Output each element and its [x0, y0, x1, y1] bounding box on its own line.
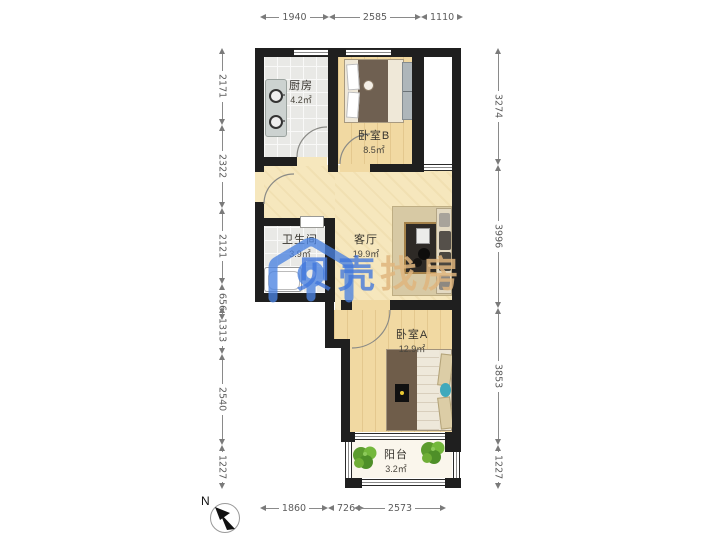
window-bedroom-a-balcony [355, 433, 445, 440]
compass-icon [207, 500, 243, 536]
window-bedroom-b [346, 49, 391, 56]
room-name: 卧室B [358, 130, 390, 142]
window-balcony-left [345, 442, 352, 478]
wall-bedroom-a-left [341, 339, 350, 439]
kitchen-door-arc [297, 127, 328, 158]
window-balcony-bottom [362, 479, 445, 486]
kitchen-label: 厨房 4.2㎡ [289, 76, 313, 106]
dim-bottom-2: 726 [328, 503, 354, 513]
post-balcony-bottom-right [445, 478, 461, 488]
dim-right-1: 3274 [492, 48, 504, 165]
watermark-brand-tan: 找房 [380, 254, 464, 295]
plant-icon [351, 443, 379, 471]
tv-box [395, 384, 409, 402]
dim-right-3: 3853 [492, 308, 504, 445]
entry-door-arc [264, 174, 295, 205]
bedroom-a-door-arc [352, 310, 391, 349]
dim-left-7: 1227 [216, 445, 228, 489]
dim-right-4: 1227 [492, 445, 504, 489]
sofa-pillow [439, 213, 450, 227]
dim-top-1: 1940 [260, 12, 329, 22]
dim-left-1: 2171 [216, 48, 228, 125]
dim-left-2: 2322 [216, 125, 228, 208]
dim-right-2: 3996 [492, 165, 504, 308]
plant-icon [419, 438, 447, 466]
post-balcony-bottom-left [345, 478, 362, 488]
window-kitchen [294, 49, 328, 56]
balcony-label: 阳台 3.2㎡ [384, 445, 408, 475]
wall-bedroom-b-bottom [370, 164, 424, 172]
burner-icon [269, 115, 283, 129]
bedroom-a-label: 卧室A 12.9㎡ [396, 325, 428, 355]
bedroom-b-label: 卧室B 8.5㎡ [358, 126, 390, 156]
window-balcony-right [453, 452, 460, 478]
room-area: 12.9㎡ [396, 344, 428, 354]
wall-left-upper [255, 48, 264, 172]
watermark-text: 贝壳找房 [296, 244, 464, 298]
wall-bath-top-left [263, 218, 300, 226]
dim-left-3: 2121 [216, 208, 228, 284]
bed-a [386, 349, 452, 431]
entry-opening [255, 172, 264, 202]
dim-bottom-3: 2573 [354, 503, 446, 513]
dim-left-4: 656 [216, 284, 228, 307]
window-shaft [424, 164, 452, 171]
dim-left-6: 2540 [216, 354, 228, 445]
bedroom-b-opening [340, 164, 370, 172]
stove [265, 79, 287, 137]
room-name: 卧室A [396, 329, 428, 341]
post-balcony-top-left [341, 432, 355, 442]
watermark-brand-blue: 贝壳 [296, 254, 380, 295]
round-pillow [440, 383, 451, 397]
wall-right [452, 48, 461, 432]
room-name: 厨房 [289, 80, 313, 92]
bed-b [344, 59, 404, 123]
wall-shaft-left [412, 57, 424, 172]
dim-left-5: 1313 [216, 307, 228, 354]
room-area: 4.2㎡ [289, 95, 313, 105]
bathroom-door-leaf [300, 216, 324, 228]
bedroom-a-floor-notch [334, 310, 350, 339]
dim-top-3: 1110 [421, 12, 461, 22]
wall-bedroom-a-top-right [390, 300, 461, 310]
pillow [346, 92, 360, 119]
room-name: 阳台 [384, 449, 408, 461]
dim-bottom-1: 1860 [260, 503, 328, 513]
dim-top-2: 2585 [329, 12, 421, 22]
floor-plan: 厨房 4.2㎡ 卧室B 8.5㎡ 卫生间 3.9㎡ 客厅 19.9㎡ 卧室A 1… [0, 0, 720, 540]
wall-kitchen-right [328, 57, 338, 172]
burner-icon [269, 89, 283, 103]
room-area: 3.2㎡ [384, 464, 408, 474]
room-area: 8.5㎡ [358, 145, 390, 155]
wall-kitchen-bottom [263, 157, 297, 166]
kitchen-opening [297, 157, 327, 166]
pillow [346, 64, 360, 91]
post-balcony-top-right [445, 432, 461, 452]
